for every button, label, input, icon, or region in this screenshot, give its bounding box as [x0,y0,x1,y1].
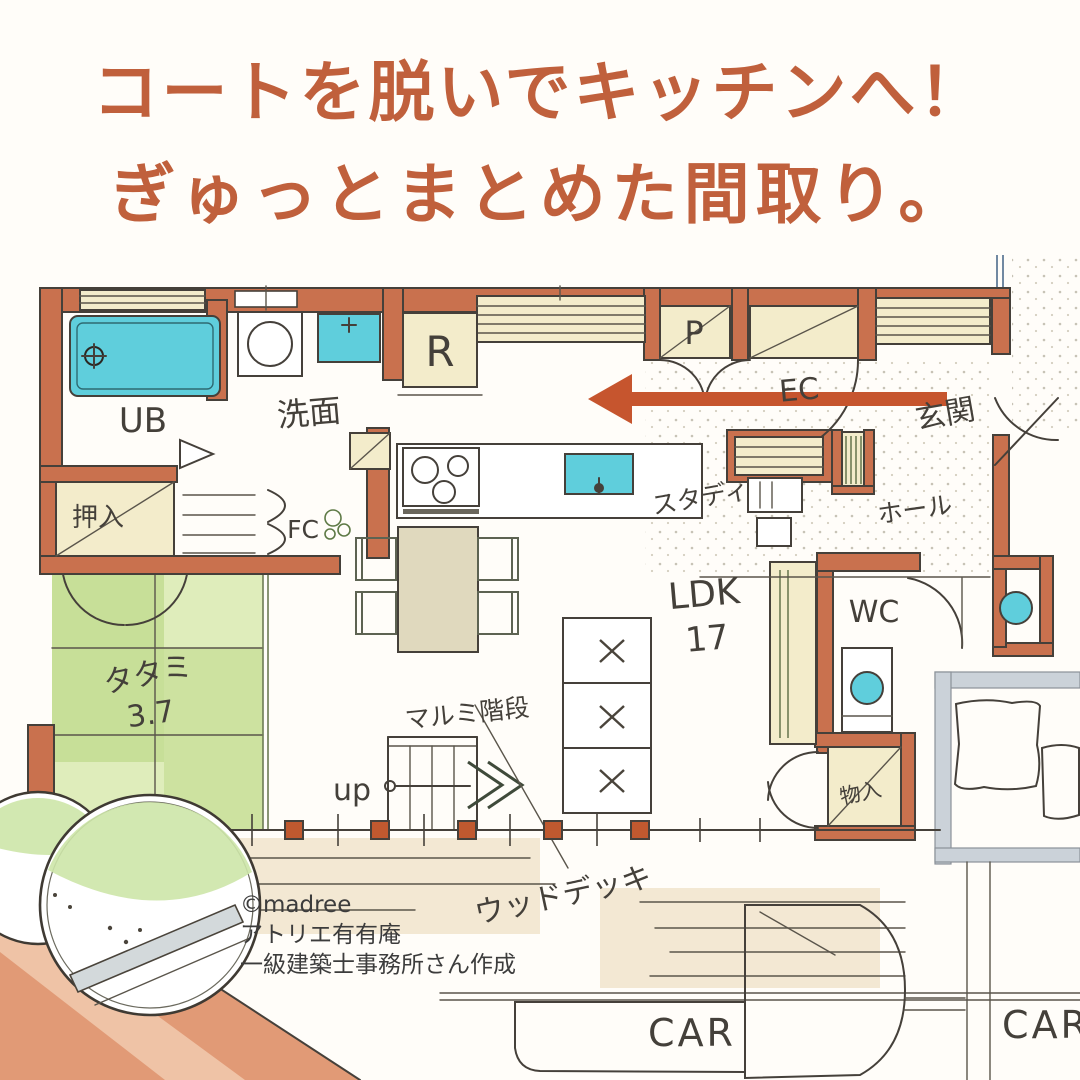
label-ldk: LDK [667,571,743,618]
storage-room [768,747,901,828]
approach-path [935,672,1080,864]
label-oshiire: 押入 [72,503,124,533]
bath-door [180,440,213,468]
label-bath: UB [119,401,167,441]
credit-line-3: 一級建築士事務所さん作成 [240,952,516,978]
label-up: up [333,773,371,808]
label-entrance-closet: EC [778,371,821,409]
floorplan-post: { "title": { "line1": "コートを脱いでキッチンへ！", "… [0,0,1080,1080]
dining-table [398,527,478,652]
label-wc: WC [849,595,900,630]
floor-plan-drawing: UB 洗面 R P EC 玄関 スタディ ホール WC LDK 17 タタミ 3… [0,0,1080,1080]
label-washroom: 洗面 [275,391,342,434]
stepping-stone [1042,745,1079,819]
tv-shelf [770,562,816,744]
label-car-left: CAR [648,1011,736,1055]
label-fridge: R [425,327,454,376]
credit-line-2: アトリエ有有庵 [240,922,401,948]
plant-icon [325,510,350,539]
study-desk [748,478,802,512]
label-car-right: CAR [1002,1003,1080,1047]
label-stairs-name: マルミ階段 [403,693,530,735]
stepping-stone [955,700,1040,789]
label-pantry: P [684,314,703,352]
wc-door-arc [908,578,962,648]
outdoor-sink [1000,592,1032,624]
label-tatami-size: 3.7 [125,694,177,735]
bathroom [70,316,220,468]
credit-line-1: ©madree [240,892,351,918]
label-ldk-size: 17 [684,617,731,661]
study-stool [757,518,791,546]
label-family-closet: FC [287,515,319,544]
